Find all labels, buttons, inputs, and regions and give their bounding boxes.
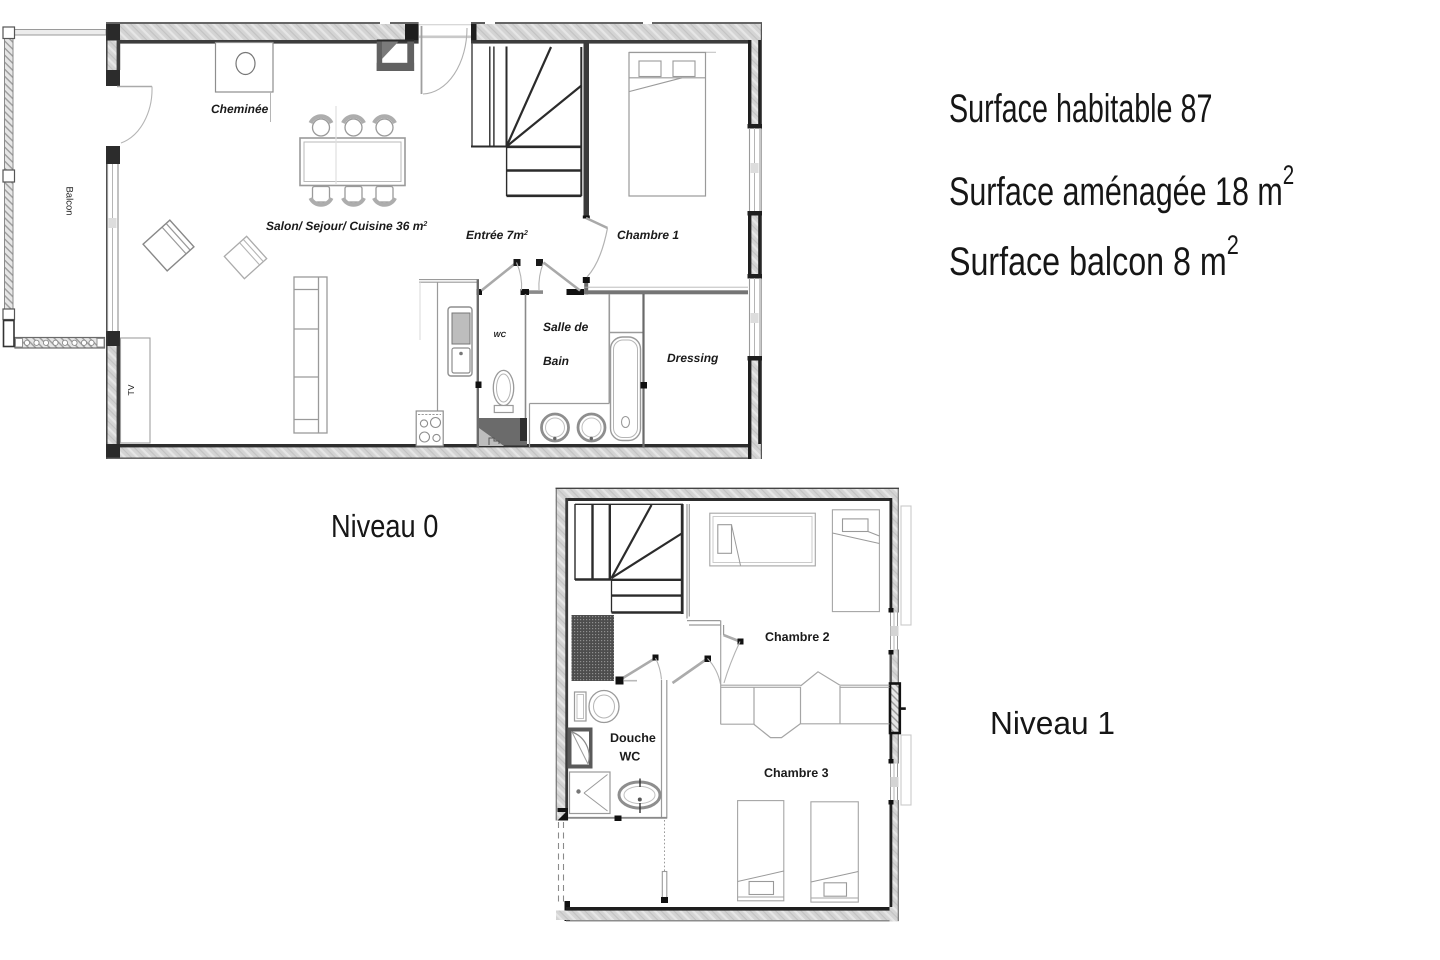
svg-text:TV: TV <box>126 384 136 395</box>
svg-text:Cheminée: Cheminée <box>211 102 269 116</box>
svg-text:Salle de: Salle de <box>543 320 589 334</box>
svg-text:WC: WC <box>620 750 641 764</box>
svg-text:Dressing: Dressing <box>667 351 719 365</box>
svg-text:Salon/ Sejour/ Cuisine 36 m2: Salon/ Sejour/ Cuisine 36 m2 <box>266 219 427 233</box>
svg-text:WC: WC <box>494 330 507 339</box>
svg-text:Niveau 1: Niveau 1 <box>990 705 1115 741</box>
svg-text:Niveau 0: Niveau 0 <box>331 508 438 544</box>
svg-text:Chambre 1: Chambre 1 <box>617 228 679 242</box>
svg-text:Balcon: Balcon <box>64 186 75 215</box>
svg-text:Bain: Bain <box>543 354 569 368</box>
svg-text:Chambre 3: Chambre 3 <box>764 766 829 780</box>
svg-text:Douche: Douche <box>610 731 656 745</box>
svg-text:Surface habitable 87: Surface habitable 87 <box>949 87 1212 131</box>
svg-text:Entrée 7m2: Entrée 7m2 <box>466 228 528 242</box>
svg-text:Chambre 2: Chambre 2 <box>765 630 830 644</box>
